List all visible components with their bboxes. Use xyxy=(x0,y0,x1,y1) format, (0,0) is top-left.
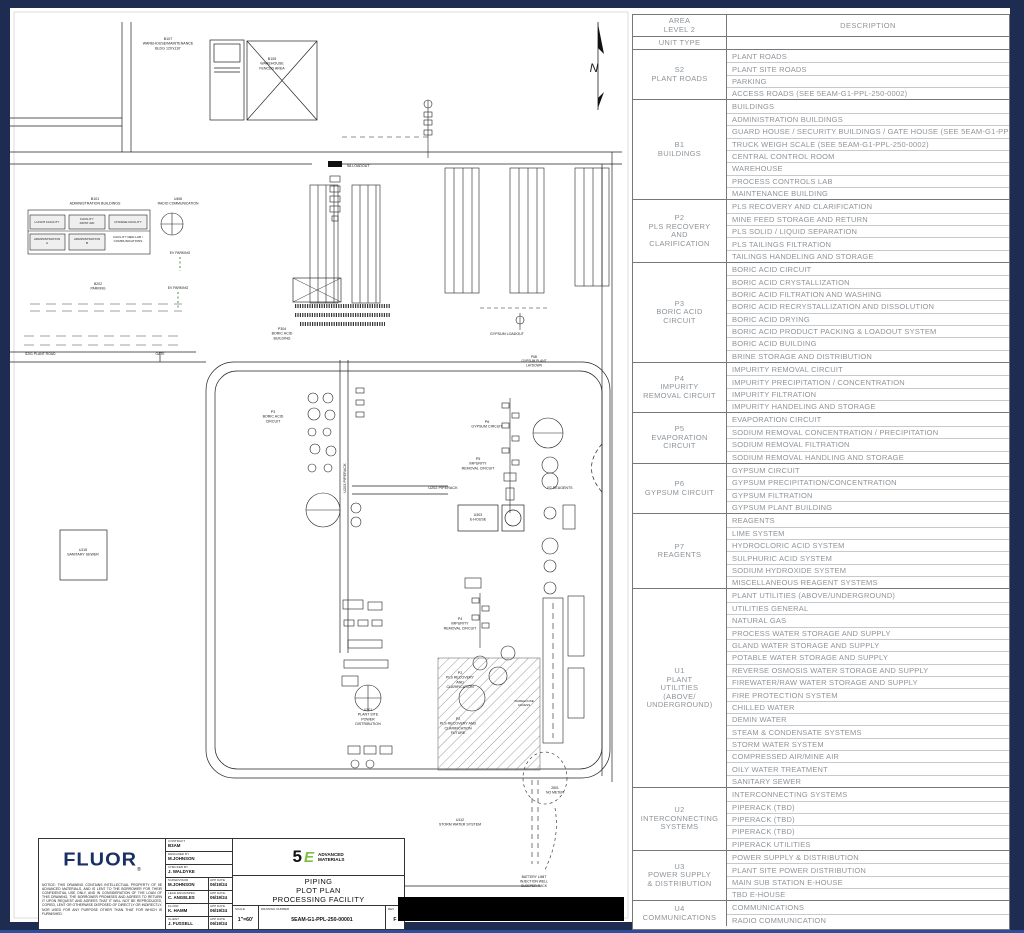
plot-label-u203-piperack: U203 PIPERACK xyxy=(343,463,347,493)
impurity-equipment xyxy=(480,308,550,513)
notice-text: NOTICE: THIS DRAWING CONTAINS INTELLECTU… xyxy=(39,881,165,929)
table-row: REAGENTS xyxy=(727,514,1009,526)
plot-label-s201-plant-road: S201 PLANT ROAD xyxy=(25,352,56,356)
field-checked-by: CHECKED BYJ. WALDYKE xyxy=(166,865,232,878)
table-row: UTILITIES GENERAL xyxy=(727,602,1009,614)
table-row: PROCESS WATER STORAGE AND SUPPLY xyxy=(727,627,1009,639)
area-group-rows: PLANT UTILITIES (ABOVE/UNDERGROUND)UTILI… xyxy=(727,589,1009,787)
table-row: TAILINGS HANDELING AND STORAGE xyxy=(727,250,1009,262)
plot-label-u112-storm-water-system: U112STORM WATER SYSTEM xyxy=(439,818,481,827)
plot-label-5a-loadout: 5A LOADOUT xyxy=(347,164,370,168)
field-designed-by: DESIGNED BYM.JOHNSON xyxy=(166,852,232,865)
unit-type-row: UNIT TYPE xyxy=(633,37,1009,50)
table-row: STORM WATER SYSTEM xyxy=(727,738,1009,750)
title-column: 5 E ADVANCED MATERIALS PIPINGPLOT PLANPR… xyxy=(233,839,404,929)
table-row: COMMUNICATIONS xyxy=(727,901,1009,913)
plot-label-gate: GATE xyxy=(156,352,166,356)
table-row: RADIO COMMUNICATION xyxy=(727,914,1009,926)
approval-fields: CONTRACTB3AMDESIGNED BYM.JOHNSONCHECKED … xyxy=(166,839,233,929)
table-row: MISCELLANEOUS REAGENT SYSTEMS xyxy=(727,576,1009,588)
area-group-rows: BUILDINGSADMINISTRATION BUILDINGSGUARD H… xyxy=(727,100,1010,199)
area-group-rows: GYPSUM CIRCUITGYPSUM PRECIPITATION/CONCE… xyxy=(727,464,1009,513)
plot-label-gypsum-loadout: GYPSUM LOADOUT xyxy=(490,332,525,336)
table-row: LIME SYSTEM xyxy=(727,527,1009,539)
field-client: CLIENTJ. FUSSELLAPP DATE06/19/24 xyxy=(166,917,232,929)
area-group-u1: U1PLANTUTILITIES(ABOVE/UNDERGROUND)PLANT… xyxy=(633,589,1009,788)
table-row: GYPSUM CIRCUIT xyxy=(727,464,1009,476)
loadout-equipment xyxy=(328,161,342,221)
registered-trademark: ® xyxy=(137,867,141,873)
plot-label-facility-med-lab: FACILITY MED LAB /COMMUNICATIONS xyxy=(113,235,143,243)
plot-label-no-meter: 2801NO METER xyxy=(546,786,564,794)
table-row: MAINTENANCE BUILDING xyxy=(727,187,1010,199)
title-line: PIPING xyxy=(305,877,333,886)
plot-label-lunch-facility: LUNCH FACILITY xyxy=(35,220,60,224)
table-row: PLANT SITE ROADS xyxy=(727,62,1009,74)
table-row: REVERSE OSMOSIS WATER STORAGE AND SUPPLY xyxy=(727,664,1009,676)
area-group-rows: INTERCONNECTING SYSTEMSPIPERACK (TBD)PIP… xyxy=(727,788,1009,850)
area-group-cell: U4COMMUNICATIONS xyxy=(633,901,727,926)
table-row: PLANT ROADS xyxy=(727,50,1009,62)
area-group-rows: PLANT ROADSPLANT SITE ROADSPARKINGACCESS… xyxy=(727,50,1009,99)
scale-value: 1"=60' xyxy=(233,911,258,929)
plot-label-p304-boric-acid-building: P304BORIC ACIDBUILDING xyxy=(272,327,293,340)
parking-stripes xyxy=(24,304,182,345)
table-row: WAREHOUSE xyxy=(727,162,1010,174)
drawing-number-value: 5EAM-G1-PPL-250-00001 xyxy=(259,911,385,929)
table-row: PLS RECOVERY AND CLARIFICATION xyxy=(727,200,1009,212)
table-row: STEAM & CONDENSATE SYSTEMS xyxy=(727,725,1009,737)
title-line: PLOT PLAN xyxy=(296,886,341,895)
5e-letter: E xyxy=(304,849,313,866)
plot-label-b101-administration-buildings: B101ADMINISTRATION BUILDINGS xyxy=(70,197,121,206)
area-group-p5: P5EVAPORATIONCIRCUITEVAPORATION CIRCUITS… xyxy=(633,413,1009,463)
table-row: BORIC ACID CIRCUIT xyxy=(727,263,1009,275)
table-row: ADMINISTRATION BUILDINGS xyxy=(727,113,1010,125)
reagents-tanks xyxy=(533,418,575,594)
area-group-b1: B1BUILDINGSBUILDINGSADMINISTRATION BUILD… xyxy=(633,100,1009,200)
table-row: BORIC ACID PRODUCT PACKING & LOADOUT SYS… xyxy=(727,325,1009,337)
table-row: IMPURITY REMOVAL CIRCUIT xyxy=(727,363,1009,375)
title-line: PROCESSING FACILITY xyxy=(272,895,364,904)
area-group-rows: REAGENTSLIME SYSTEMHYDROCLORIC ACID SYST… xyxy=(727,514,1009,588)
table-row: POWER SUPPLY & DISTRIBUTION xyxy=(727,851,1009,863)
table-row: FIREWATER/RAW WATER STORAGE AND SUPPLY xyxy=(727,676,1009,688)
table-row: SANITARY SEWER xyxy=(727,775,1009,787)
table-row: SODIUM REMOVAL CONCENTRATION / PRECIPITA… xyxy=(727,426,1009,438)
table-row: PIPERACK (TBD) xyxy=(727,813,1009,825)
table-row: PIPERACK UTILITIES xyxy=(727,838,1009,850)
table-row: SULPHURIC ACID SYSTEM xyxy=(727,551,1009,563)
area-group-cell: P4IMPURITYREMOVAL CIRCUIT xyxy=(633,363,727,412)
table-row: NATURAL GAS xyxy=(727,614,1009,626)
plot-label-p3-boric-acid-circuit: P3BORIC ACIDCIRCUIT xyxy=(263,410,284,423)
plot-label-u303-e-house: U303E-HOUSE xyxy=(470,513,487,522)
plot-label-facility-first-aid: FACILITYFIRST AID xyxy=(80,217,95,225)
app-date-cell: APP DATE06/19/24 xyxy=(208,904,232,916)
area-group-u2: U2INTERCONNECTINGSYSTEMSINTERCONNECTING … xyxy=(633,788,1009,851)
5e-advanced-materials-logo: 5 E ADVANCED MATERIALS xyxy=(233,839,404,875)
area-unit-table: AREALEVEL 2DESCRIPTIONUNIT TYPES2PLANT R… xyxy=(632,14,1010,930)
plot-label-ev-parking-1: EV PARKING xyxy=(170,251,191,255)
area-group-s2: S2PLANT ROADSPLANT ROADSPLANT SITE ROADS… xyxy=(633,50,1009,100)
plot-label-change-facility: CHANGE FACILITY xyxy=(114,220,142,224)
unit-type-cell: UNIT TYPE xyxy=(633,37,727,49)
table-row: MINE FEED STORAGE AND RETURN xyxy=(727,213,1009,225)
table-row: PLS TAILINGS FILTRATION xyxy=(727,237,1009,249)
title-block: FLUOR ® NOTICE: THIS DRAWING CONTAINS IN… xyxy=(38,838,405,930)
description-header: DESCRIPTION xyxy=(727,15,1009,36)
utility-cluster xyxy=(424,100,432,158)
table-row: HYDROCLORIC ACID SYSTEM xyxy=(727,539,1009,551)
area-group-p7: P7REAGENTSREAGENTSLIME SYSTEMHYDROCLORIC… xyxy=(633,514,1009,589)
table-row: GLAND WATER STORAGE AND SUPPLY xyxy=(727,639,1009,651)
drawing-number-cell: DRAWING NUMBER 5EAM-G1-PPL-250-00001 xyxy=(259,906,386,929)
plot-label-p5-impurity-removal-circuit: P5IMPURITYREMOVAL CIRCUIT xyxy=(462,457,496,470)
table-row: POTABLE WATER STORAGE AND SUPPLY xyxy=(727,651,1009,663)
table-row: MAIN SUB STATION E-HOUSE xyxy=(727,876,1009,888)
table-row: PLANT UTILITIES (ABOVE/UNDERGROUND) xyxy=(727,589,1009,601)
area-group-u4: U4COMMUNICATIONSCOMMUNICATIONSRADIO COMM… xyxy=(633,901,1009,926)
scale-cell: SCALE 1"=60' xyxy=(233,906,259,929)
table-row: BORIC ACID DRYING xyxy=(727,313,1009,325)
drawing-sheet: NB107WAREHOUSE/MAINTENANCEBLDG 120'x110'… xyxy=(10,8,1010,922)
area-group-u3: U3POWER SUPPLY& DISTRIBUTIONPOWER SUPPLY… xyxy=(633,851,1009,901)
area-group-cell: P2PLS RECOVERYANDCLARIFICATION xyxy=(633,200,727,262)
area-group-cell: U2INTERCONNECTINGSYSTEMS xyxy=(633,788,727,850)
plot-label-u408-radio-communication: U408RADIO COMMUNICATION xyxy=(158,197,199,205)
sheet-border xyxy=(14,12,628,918)
table-row: BORIC ACID RECRYSTALLIZATION AND DISSOLU… xyxy=(727,300,1009,312)
table-row: GYPSUM FILTRATION xyxy=(727,489,1009,501)
table-row: BORIC ACID CRYSTALLIZATION xyxy=(727,275,1009,287)
table-row: BORIC ACID BUILDING xyxy=(727,337,1009,349)
table-row: PIPERACK (TBD) xyxy=(727,801,1009,813)
area-level2-header: AREALEVEL 2 xyxy=(633,15,727,36)
boric-circuit-tanks xyxy=(306,388,364,527)
table-row: IMPURITY PRECIPITATION / CONCENTRATION xyxy=(727,375,1009,387)
5e-name: ADVANCED MATERIALS xyxy=(318,852,344,863)
table-row: TRUCK WEIGH SCALE (SEE 5EAM-G1-PPL-250-0… xyxy=(727,138,1010,150)
plot-label-p6b-gypsum-loadout: P6BGYPSUM PLANTLAYDOWN xyxy=(522,355,547,367)
plot-label-b202-parking: B202PARKING xyxy=(90,282,105,290)
table-row: CENTRAL CONTROL ROOM xyxy=(727,150,1010,162)
area-group-cell: P7REAGENTS xyxy=(633,514,727,588)
plot-plan-drawing: NB107WAREHOUSE/MAINTENANCEBLDG 120'x110'… xyxy=(10,8,632,922)
5e-numeral: 5 xyxy=(293,847,302,867)
area-group-cell: B1BUILDINGS xyxy=(633,100,727,199)
right-racks xyxy=(543,596,584,743)
area-group-p6: P6GYPSUM CIRCUITGYPSUM CIRCUITGYPSUM PRE… xyxy=(633,464,1009,514)
area-group-rows: PLS RECOVERY AND CLARIFICATIONMINE FEED … xyxy=(727,200,1009,262)
area-group-cell: U1PLANTUTILITIES(ABOVE/UNDERGROUND) xyxy=(633,589,727,787)
field-lead-engr-spec: LEAD ENGR/SPECC. ANGELESAPP DATE06/19/24 xyxy=(166,891,232,904)
fluor-wordmark: FLUOR xyxy=(63,849,137,870)
e-house xyxy=(458,505,524,531)
table-row: SODIUM HYDROXIDE SYSTEM xyxy=(727,564,1009,576)
table-header: AREALEVEL 2DESCRIPTION xyxy=(633,15,1009,37)
table-row: OILY WATER TREATMENT xyxy=(727,762,1009,774)
area-group-cell: P6GYPSUM CIRCUIT xyxy=(633,464,727,513)
area-group-p3: P3BORIC ACIDCIRCUITBORIC ACID CIRCUITBOR… xyxy=(633,263,1009,363)
area-group-p4: P4IMPURITYREMOVAL CIRCUITIMPURITY REMOVA… xyxy=(633,363,1009,413)
table-row: FIRE PROTECTION SYSTEM xyxy=(727,688,1009,700)
plot-label-p7-reagents: P7 REAGENTS xyxy=(547,486,573,490)
redaction-bar xyxy=(398,897,624,921)
area-group-rows: BORIC ACID CIRCUITBORIC ACID CRYSTALLIZA… xyxy=(727,263,1009,362)
table-row: BRINE STORAGE AND DISTRIBUTION xyxy=(727,350,1009,362)
plot-label-u115-sanitary-sewer: U115SANITARY SEWER xyxy=(67,548,99,557)
plot-label-north: N xyxy=(590,61,599,75)
area-group-cell: P5EVAPORATIONCIRCUIT xyxy=(633,413,727,462)
table-row: DEMIN WATER xyxy=(727,713,1009,725)
field-contract: CONTRACTB3AM xyxy=(166,839,232,852)
table-row: COMPRESSED AIR/MINE AIR xyxy=(727,750,1009,762)
area-group-cell: U3POWER SUPPLY& DISTRIBUTION xyxy=(633,851,727,900)
area-group-cell: S2PLANT ROADS xyxy=(633,50,727,99)
area-group-cell: P3BORIC ACIDCIRCUIT xyxy=(633,263,727,362)
plot-label-ev-parking-2: EV PARKING xyxy=(168,286,189,290)
power-distribution-cluster xyxy=(342,600,392,768)
table-row: GYPSUM PLANT BUILDING xyxy=(727,501,1009,513)
ev-parking-markers xyxy=(178,257,180,310)
5e-name-line1: ADVANCED xyxy=(318,852,344,857)
table-row: TBD E-HOUSE xyxy=(727,888,1009,900)
table-row: PROCESS CONTROLS LAB xyxy=(727,175,1010,187)
plot-label-u301-plant-site-power: U301PLANT SITEPOWERDISTRIBUTION xyxy=(355,708,381,726)
boric-acid-building-area xyxy=(293,278,390,324)
title-block-bottom-row: SCALE 1"=60' DRAWING NUMBER 5EAM-G1-PPL-… xyxy=(233,905,404,929)
administration-complex xyxy=(28,210,183,254)
table-row: IMPURITY HANDELING AND STORAGE xyxy=(727,400,1009,412)
table-row: SODIUM REMOVAL FILTRATION xyxy=(727,438,1009,450)
table-row: BUILDINGS xyxy=(727,100,1010,112)
table-row: INTERCONNECTING SYSTEMS xyxy=(727,788,1009,800)
fluor-column: FLUOR ® NOTICE: THIS DRAWING CONTAINS IN… xyxy=(39,839,166,929)
field-fluor: FLUORK. HAMMAPP DATE06/19/24 xyxy=(166,904,232,917)
area-group-rows: POWER SUPPLY & DISTRIBUTIONPLANT SITE PO… xyxy=(727,851,1009,900)
table-row: PLS SOLID / LIQUID SEPARATION xyxy=(727,225,1009,237)
fluor-logo: FLUOR ® xyxy=(39,839,165,881)
plot-label-battery-limit: BATTERY LIMITINJECTION WELLSLEEPER RACK xyxy=(520,875,548,888)
table-row: IMPURITY FILTRATION xyxy=(727,388,1009,400)
app-date-cell: APP DATE06/19/24 xyxy=(208,878,232,890)
unit-type-description-cell xyxy=(727,37,1009,49)
table-row: ACCESS ROADS (SEE 5EAM-G1-PPL-250-0002) xyxy=(727,87,1009,99)
field-supervisor: SUPERVISORM.JOHNSONAPP DATE06/19/24 xyxy=(166,878,232,891)
app-date-cell: APP DATE06/19/24 xyxy=(208,917,232,929)
table-row: PIPERACK (TBD) xyxy=(727,825,1009,837)
north-arrow xyxy=(598,22,604,110)
table-row: CHILLED WATER xyxy=(727,701,1009,713)
app-date-cell: APP DATE06/19/24 xyxy=(208,891,232,903)
plot-label-p6-gypsum-circuit: P6GYPSUM CIRCUIT xyxy=(471,420,503,429)
area-group-rows: EVAPORATION CIRCUITSODIUM REMOVAL CONCEN… xyxy=(727,413,1009,462)
canopy-structures xyxy=(310,168,609,303)
5e-name-line2: MATERIALS xyxy=(318,857,344,862)
plot-label-b107-warehouse-maintenance: B107WAREHOUSE/MAINTENANCEBLDG 120'x110' xyxy=(143,37,194,50)
plot-label-u202-piperack: U202 PIPERACK xyxy=(428,486,458,490)
area-group-rows: IMPURITY REMOVAL CIRCUITIMPURITY PRECIPI… xyxy=(727,363,1009,412)
drawing-title: PIPINGPLOT PLANPROCESSING FACILITY xyxy=(233,875,404,905)
table-row: EVAPORATION CIRCUIT xyxy=(727,413,1009,425)
table-row: PARKING xyxy=(727,75,1009,87)
area-group-p2: P2PLS RECOVERYANDCLARIFICATIONPLS RECOVE… xyxy=(633,200,1009,263)
area-group-rows: COMMUNICATIONSRADIO COMMUNICATION xyxy=(727,901,1009,926)
warehouse-buildings xyxy=(210,40,317,120)
table-row: SODIUM REMOVAL HANDLING AND STORAGE xyxy=(727,451,1009,463)
table-row: BORIC ACID FILTRATION AND WASHING xyxy=(727,288,1009,300)
table-row: GYPSUM PRECIPITATION/CONCENTRATION xyxy=(727,476,1009,488)
table-row: GUARD HOUSE / SECURITY BUILDINGS / GATE … xyxy=(727,125,1010,137)
table-row: PLANT SITE POWER DISTRIBUTION xyxy=(727,863,1009,875)
